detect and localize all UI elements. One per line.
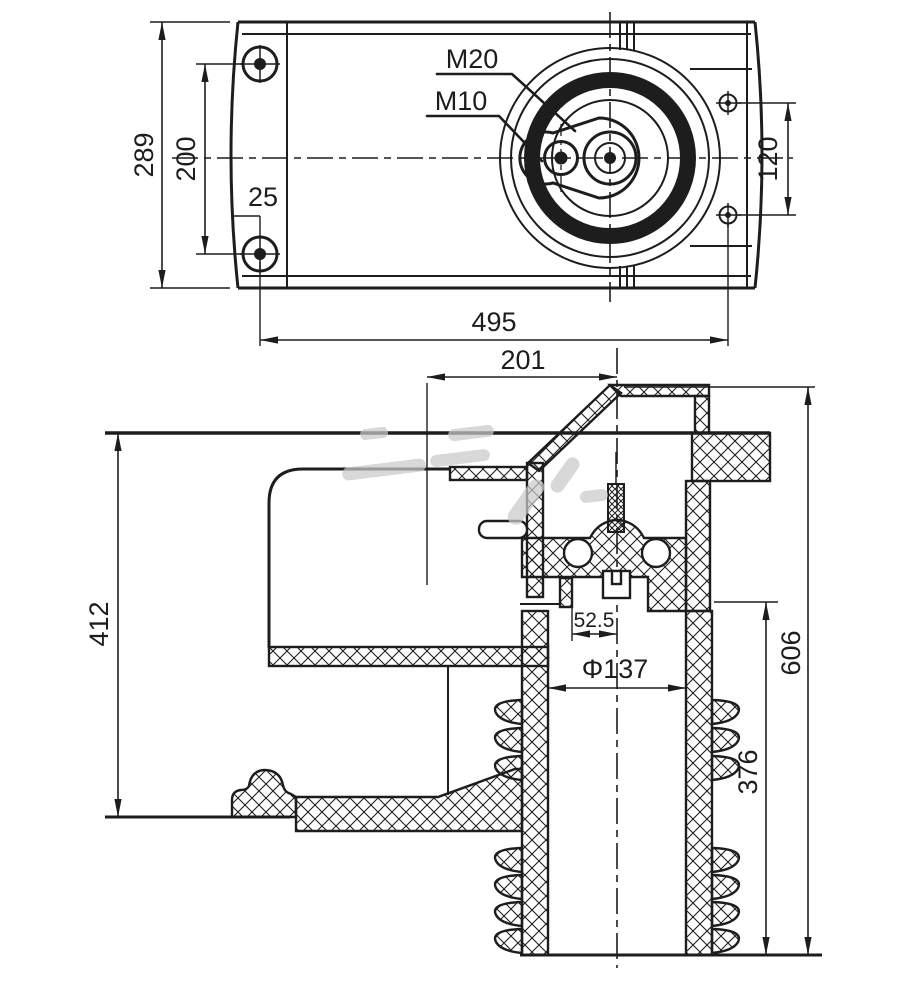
thread-label-m10: M10 [435,86,488,116]
technical-drawing: M20 M10 289 200 25 495 [0,0,900,990]
dome-section [520,452,686,611]
upper-flange-section [686,396,770,611]
dim-label-412: 412 [84,601,114,646]
center-stud-section [608,484,624,532]
dim-label-201: 201 [500,345,545,375]
dimension-phi137: Φ137 [548,654,686,688]
dim-label-phi137: Φ137 [582,654,649,684]
bushing-wall-left [522,611,548,955]
dimension-52-5: 52.5 [572,607,617,641]
top-view: M20 M10 289 200 25 495 [129,12,796,346]
bolt-hole-top-right [716,91,741,115]
arm-boss-section [232,770,296,817]
dim-label-200: 200 [171,136,201,181]
dimension-495: 495 [260,224,728,346]
dim-label-495: 495 [471,307,516,337]
dimension-412: 412 [84,433,118,817]
terminal-pad-section [528,385,709,471]
bolt-hole-top-left [240,45,280,83]
contact-edge-section [560,578,572,607]
bushing-wall-right [686,611,712,955]
bolt-hole-bottom-right [716,203,741,227]
terminal-nut-notch [612,571,621,584]
dim-label-606: 606 [776,630,806,675]
dim-label-52-5: 52.5 [574,609,615,632]
thread-label-m20: M20 [446,44,499,74]
dim-label-25: 25 [248,182,278,212]
dome-valley-left [564,539,592,567]
sheds-right [712,700,739,953]
dim-label-289: 289 [129,132,159,177]
dim-label-376: 376 [733,749,763,794]
dome-valley-right [642,539,670,567]
box-bottom-wall-section [269,647,548,666]
dim-label-120: 120 [753,136,783,181]
drawing-page: M20 M10 289 200 25 495 [0,0,900,990]
box-top-wall-section [450,467,527,480]
support-arm-section [232,769,522,831]
dimension-25: 25 [231,182,278,238]
slot-tabs [620,23,634,287]
